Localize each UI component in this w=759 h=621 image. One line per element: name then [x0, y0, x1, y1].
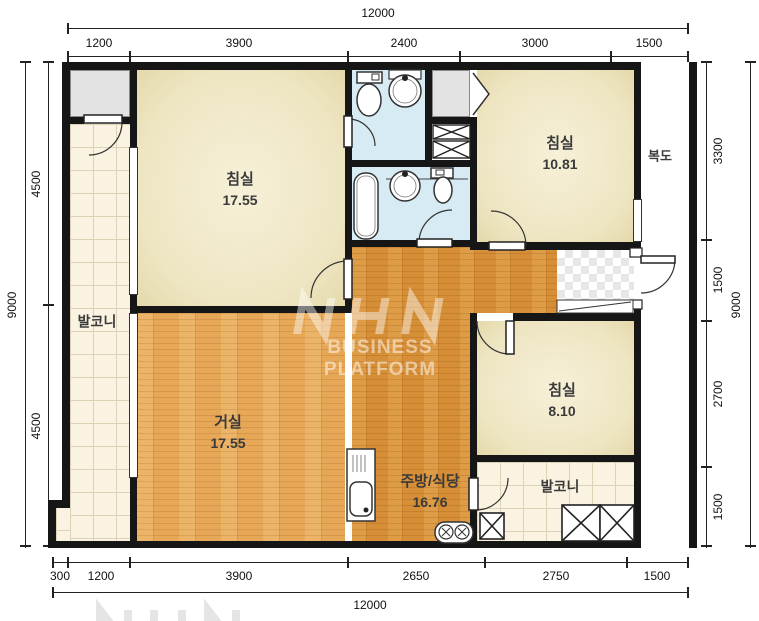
door-master-bath	[344, 116, 375, 147]
label-corridor: 복도	[648, 146, 672, 167]
room-area: 10.81	[542, 154, 577, 175]
sink	[390, 171, 420, 201]
floor-plan-canvas: 12000 1200 3900 2400 3000 1500 300 1200 …	[0, 0, 759, 621]
room-name: 발코니	[541, 477, 580, 498]
room-area: 17.55	[222, 190, 257, 211]
room-area: 8.10	[548, 401, 576, 422]
fixtures-overlay	[0, 0, 759, 621]
gas-stove	[435, 522, 473, 543]
duct-shaft	[433, 125, 470, 158]
toilet	[431, 168, 453, 203]
toilet	[357, 72, 382, 116]
bathtub	[354, 173, 378, 239]
room-area: 16.76	[400, 492, 459, 513]
door-utility-balcony	[84, 115, 122, 155]
front-door	[630, 248, 675, 309]
watermark-logo	[297, 298, 439, 334]
room-name: 주방/식당	[400, 471, 459, 492]
closet-bifold-door	[473, 73, 489, 115]
room-name: 복도	[648, 146, 672, 167]
label-kitchen-dining: 주방/식당 16.76	[400, 471, 459, 513]
room-name: 거실	[210, 412, 245, 433]
label-bedroom-top-right: 침실 10.81	[542, 133, 577, 175]
door-bedroom1	[311, 259, 352, 299]
door-kitchen-balcony	[469, 478, 508, 510]
label-balcony-left: 발코니	[78, 312, 117, 333]
label-bedroom-bottom-right: 침실 8.10	[548, 380, 576, 422]
label-living-room: 거실 17.55	[210, 412, 245, 454]
door-common-bath	[417, 210, 452, 247]
watermark-text: BUSINESS PLATFORM	[270, 337, 490, 381]
room-name: 침실	[548, 380, 576, 401]
kitchen-sink-counter	[347, 449, 375, 521]
label-balcony-bottom-right: 발코니	[541, 477, 580, 498]
watermark-logo-partial	[100, 610, 236, 621]
room-name: 침실	[542, 133, 577, 154]
room-area: 17.55	[210, 433, 245, 454]
door-bedroom2	[489, 211, 526, 250]
ac-unit-platform	[480, 505, 634, 541]
sink	[389, 70, 421, 107]
label-bedroom-top-left: 침실 17.55	[222, 169, 257, 211]
room-name: 침실	[222, 169, 257, 190]
room-name: 발코니	[78, 312, 117, 333]
shoe-cabinet	[557, 300, 633, 313]
